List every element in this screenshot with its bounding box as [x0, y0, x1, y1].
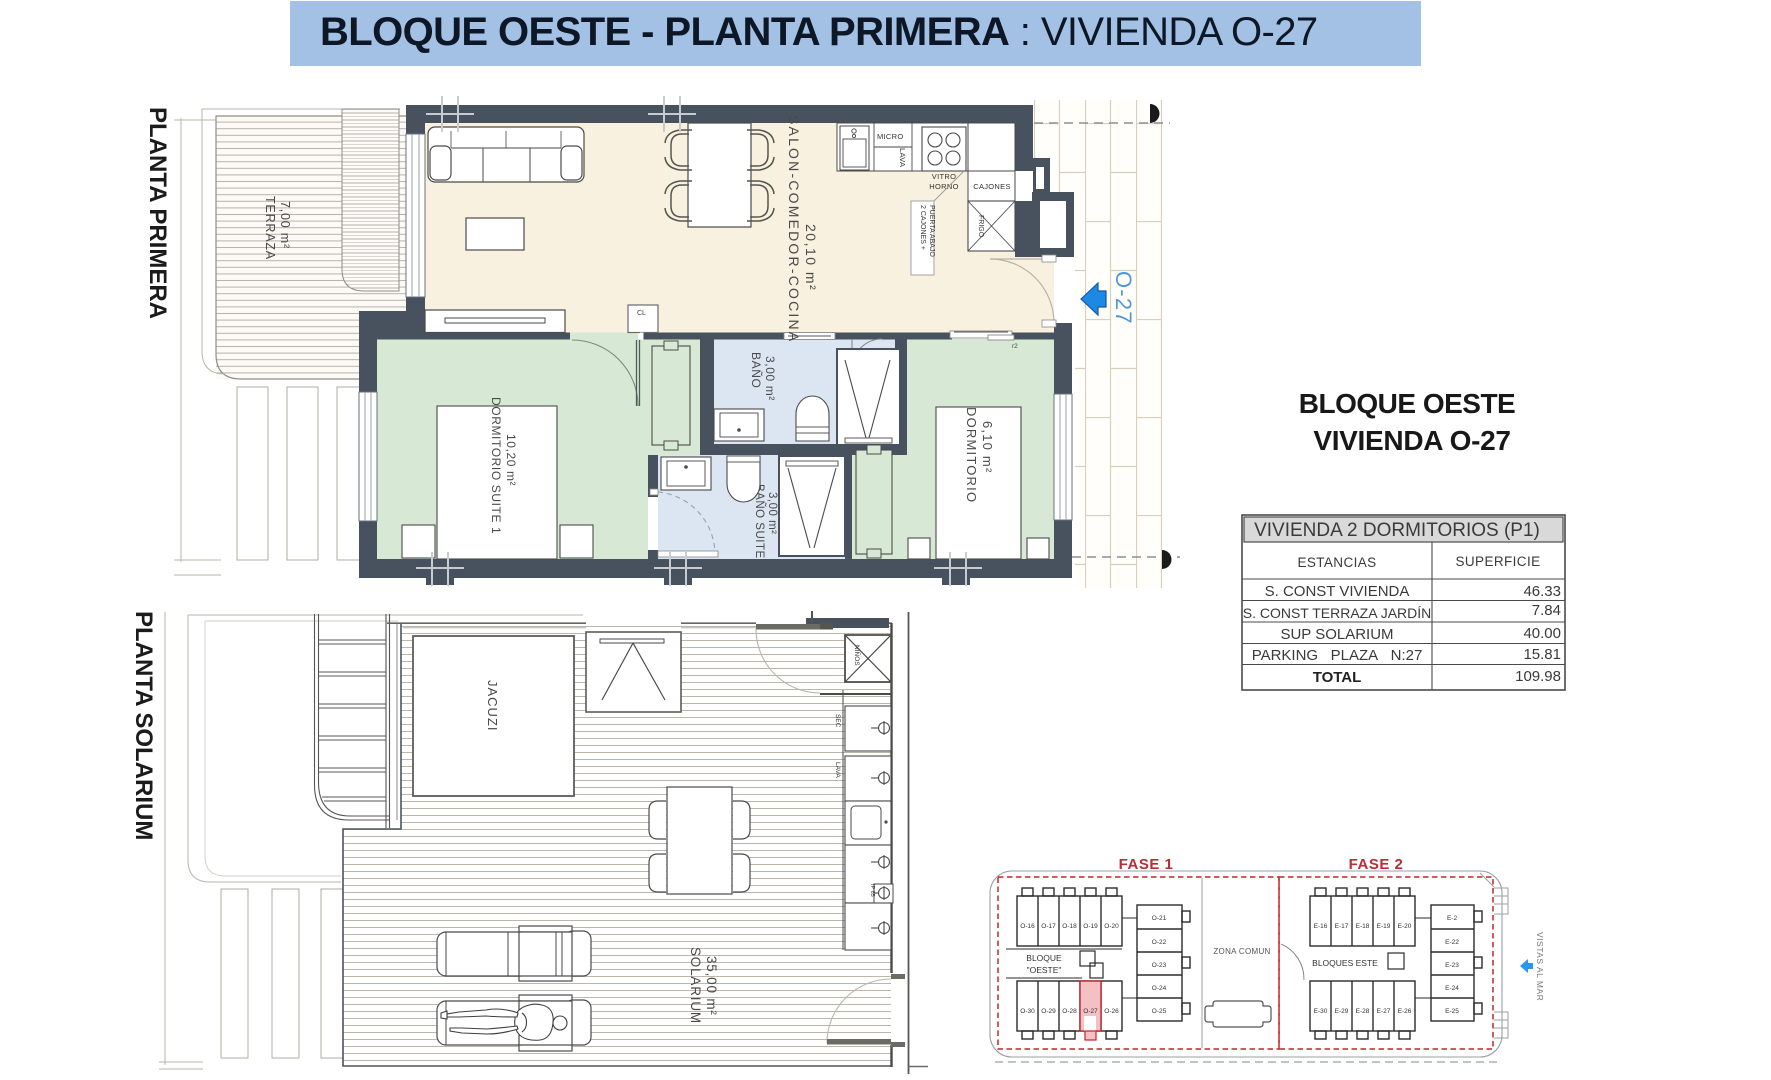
svg-text:O-26: O-26	[1104, 1008, 1119, 1015]
svg-text:BLOQUES ESTE: BLOQUES ESTE	[1312, 958, 1378, 968]
svg-text:E-18: E-18	[1356, 923, 1370, 930]
svg-text:PARKING PLAZA N:27: PARKING PLAZA N:27	[1252, 647, 1423, 664]
svg-text:10,20 m²: 10,20 m²	[504, 434, 518, 486]
svg-text:PLANTA PRIMERA: PLANTA PRIMERA	[144, 107, 171, 319]
svg-text:O-23: O-23	[1152, 962, 1167, 969]
svg-text:O-22: O-22	[1152, 939, 1167, 946]
svg-text:VITRO: VITRO	[932, 172, 956, 181]
svg-text:BLOQUE: BLOQUE	[1026, 953, 1062, 963]
svg-text:BAÑO: BAÑO	[749, 352, 763, 388]
svg-text:6,10 m²: 6,10 m²	[980, 421, 995, 473]
svg-text:E-27: E-27	[1377, 1008, 1391, 1015]
svg-text:46.33: 46.33	[1523, 583, 1561, 600]
svg-text:S. CONST TERRAZA JARDÍN: S. CONST TERRAZA JARDÍN	[1243, 605, 1432, 621]
svg-text:DORMITORIO SUITE 1: DORMITORIO SUITE 1	[489, 397, 503, 534]
svg-text:O-17: O-17	[1041, 923, 1056, 930]
svg-text:LAVA: LAVA	[834, 762, 841, 778]
svg-text:E-20: E-20	[1398, 923, 1412, 930]
svg-text:MICRO: MICRO	[877, 132, 904, 141]
svg-text:JACUZI: JACUZI	[485, 680, 500, 732]
svg-text:S. CONST VIVIENDA: S. CONST VIVIENDA	[1265, 583, 1410, 600]
svg-text:E-26: E-26	[1398, 1008, 1412, 1015]
svg-text:LAVA: LAVA	[898, 148, 907, 167]
svg-text:HORNO: HORNO	[929, 182, 958, 191]
svg-text:E-17: E-17	[1335, 923, 1349, 930]
svg-text:O-30: O-30	[1020, 1008, 1035, 1015]
svg-text:VISTAS AL MAR: VISTAS AL MAR	[1535, 932, 1545, 1001]
svg-text:3,00 m²: 3,00 m²	[766, 492, 778, 535]
svg-text:BLOQUE OESTE: BLOQUE OESTE	[1299, 388, 1515, 419]
svg-text:"OESTE": "OESTE"	[1027, 965, 1062, 975]
svg-text:NIÑOS: NIÑOS	[853, 645, 862, 666]
svg-text:O-16: O-16	[1020, 923, 1035, 930]
svg-text:VIVIENDA O-27: VIVIENDA O-27	[1313, 425, 1510, 456]
svg-text:E-22: E-22	[1445, 939, 1459, 946]
svg-text:PUERTA ABAJO: PUERTA ABAJO	[928, 205, 935, 257]
svg-text:CL: CL	[637, 310, 646, 317]
svg-text:O-21: O-21	[1152, 915, 1167, 922]
svg-text:SUP SOLARIUM: SUP SOLARIUM	[1280, 626, 1393, 643]
svg-text:O-18: O-18	[1062, 923, 1077, 930]
svg-text:20,10 m²: 20,10 m²	[803, 224, 819, 291]
svg-text:ZONA COMUN: ZONA COMUN	[1213, 947, 1270, 956]
svg-text:TERRAZA: TERRAZA	[263, 196, 277, 260]
svg-text:109.98: 109.98	[1515, 668, 1561, 685]
svg-text:VIVIENDA 2 DORMITORIOS (P1): VIVIENDA 2 DORMITORIOS (P1)	[1254, 520, 1540, 541]
svg-text:40.00: 40.00	[1523, 625, 1561, 642]
svg-text:E-28: E-28	[1356, 1008, 1370, 1015]
svg-text:15.81: 15.81	[1523, 646, 1561, 663]
svg-text:O-28: O-28	[1062, 1008, 1077, 1015]
svg-text:SEC: SEC	[834, 714, 841, 728]
svg-text:E-30: E-30	[1314, 1008, 1328, 1015]
svg-text:CAJONES: CAJONES	[973, 182, 1011, 191]
svg-text:O-20: O-20	[1104, 923, 1119, 930]
svg-text:BLOQUE OESTE - PLANTA PRIMERA: BLOQUE OESTE - PLANTA PRIMERA : VIVIENDA…	[320, 10, 1318, 54]
svg-text:ESTANCIAS: ESTANCIAS	[1297, 555, 1376, 570]
svg-text:SALON-COMEDOR-COCINA: SALON-COMEDOR-COCINA	[786, 115, 802, 343]
svg-text:E-2: E-2	[1447, 915, 1458, 922]
svg-text:7,00 m²: 7,00 m²	[278, 201, 292, 249]
svg-text:TOTAL: TOTAL	[1313, 669, 1362, 686]
svg-text:O-24: O-24	[1152, 985, 1167, 992]
svg-text:35,00 m²: 35,00 m²	[704, 956, 719, 1016]
svg-text:7.84: 7.84	[1532, 602, 1561, 619]
svg-text:SUPERFICIE: SUPERFICIE	[1455, 554, 1540, 569]
svg-text:IP 65: IP 65	[869, 884, 875, 897]
svg-text:SOLARIUM: SOLARIUM	[688, 947, 703, 1024]
svg-text:3,00 m²: 3,00 m²	[763, 356, 777, 401]
svg-text:E-16: E-16	[1314, 923, 1328, 930]
svg-text:O-29: O-29	[1041, 1008, 1056, 1015]
svg-text:O-19: O-19	[1083, 923, 1098, 930]
svg-text:E-24: E-24	[1445, 985, 1459, 992]
svg-text:r2: r2	[1012, 343, 1018, 350]
svg-text:E-23: E-23	[1445, 962, 1459, 969]
svg-text:FRIGO: FRIGO	[977, 215, 984, 238]
svg-text:PLANTA SOLARIUM: PLANTA SOLARIUM	[130, 611, 157, 840]
svg-text:E-19: E-19	[1377, 923, 1391, 930]
svg-text:O-25: O-25	[1152, 1008, 1167, 1015]
svg-text:O-27: O-27	[1083, 1008, 1098, 1015]
svg-text:O-27: O-27	[1111, 271, 1136, 325]
svg-text:E-29: E-29	[1335, 1008, 1349, 1015]
svg-text:DORMITORIO: DORMITORIO	[964, 407, 979, 503]
svg-text:2 CAJONES +: 2 CAJONES +	[919, 205, 926, 250]
svg-text:E-25: E-25	[1445, 1008, 1459, 1015]
